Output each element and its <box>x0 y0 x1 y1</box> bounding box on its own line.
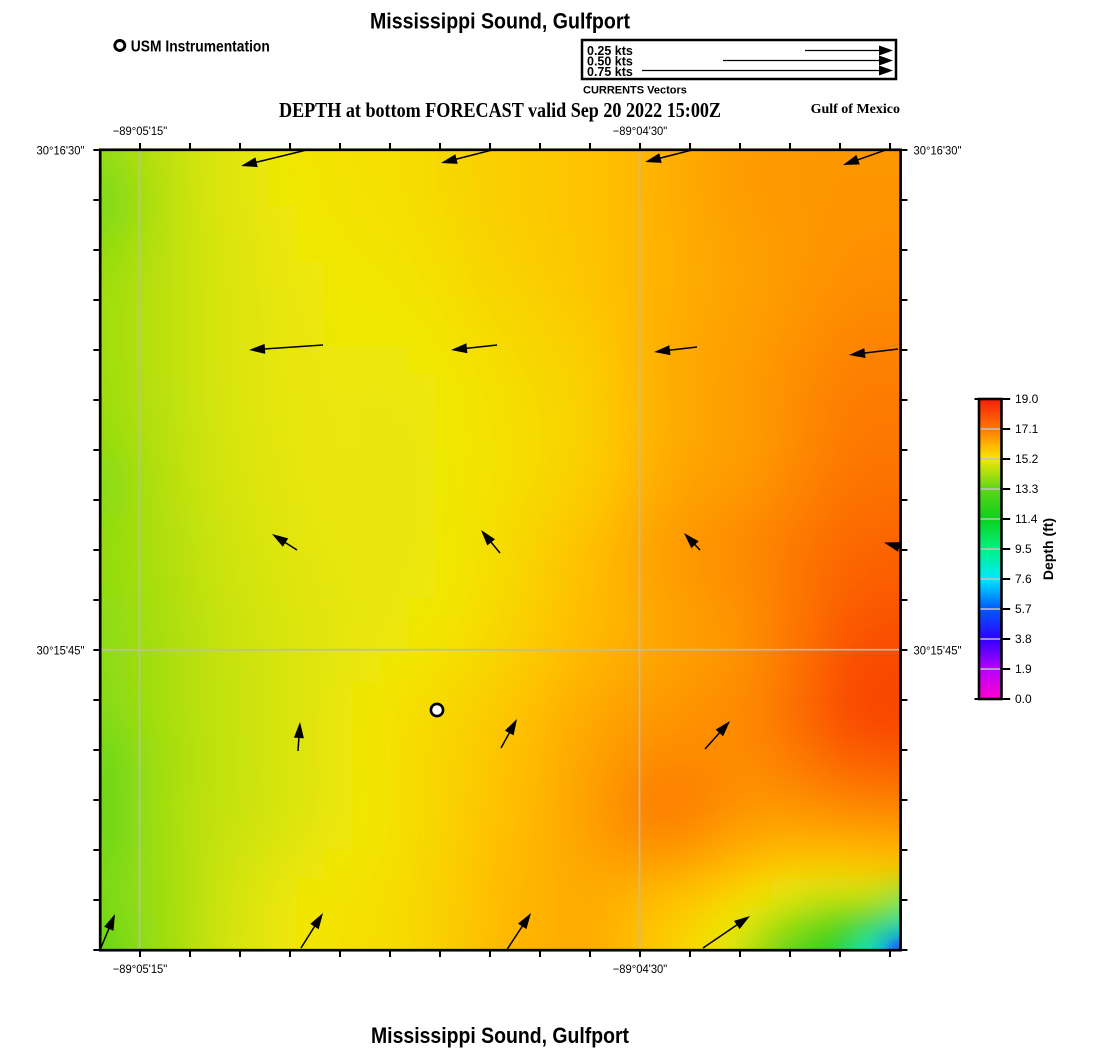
svg-text:Mississippi Sound, Gulfport: Mississippi Sound, Gulfport <box>370 9 631 34</box>
svg-text:−89°04'30": −89°04'30" <box>613 124 668 138</box>
svg-text:USM Instrumentation: USM Instrumentation <box>131 39 270 56</box>
svg-text:Gulf of Mexico: Gulf of Mexico <box>811 102 900 117</box>
svg-text:1.9: 1.9 <box>1015 662 1032 676</box>
svg-text:0.0: 0.0 <box>1015 692 1032 706</box>
svg-text:0.75 kts: 0.75 kts <box>587 65 633 79</box>
svg-text:13.3: 13.3 <box>1015 482 1039 496</box>
svg-text:30°16'30": 30°16'30" <box>37 143 85 157</box>
svg-text:19.0: 19.0 <box>1015 392 1039 406</box>
svg-text:30°15'45": 30°15'45" <box>37 643 85 657</box>
svg-text:5.7: 5.7 <box>1015 602 1032 616</box>
svg-text:−89°05'15": −89°05'15" <box>113 124 168 138</box>
svg-text:15.2: 15.2 <box>1015 452 1039 466</box>
svg-text:7.6: 7.6 <box>1015 572 1032 586</box>
svg-text:11.4: 11.4 <box>1015 512 1038 526</box>
svg-text:30°15'45": 30°15'45" <box>914 643 962 657</box>
svg-text:Depth (ft): Depth (ft) <box>1040 518 1056 580</box>
svg-text:−89°04'30": −89°04'30" <box>613 962 668 976</box>
svg-text:30°16'30": 30°16'30" <box>914 143 962 157</box>
svg-text:17.1: 17.1 <box>1015 422 1039 436</box>
svg-text:CURRENTS Vectors: CURRENTS Vectors <box>583 85 687 97</box>
svg-text:9.5: 9.5 <box>1015 542 1032 556</box>
svg-text:−89°05'15": −89°05'15" <box>113 962 168 976</box>
svg-text:3.8: 3.8 <box>1015 632 1032 646</box>
svg-text:Mississippi Sound, Gulfport: Mississippi Sound, Gulfport <box>371 1023 630 1048</box>
svg-text:DEPTH at bottom FORECAST valid: DEPTH at bottom FORECAST valid Sep 20 20… <box>279 98 721 122</box>
